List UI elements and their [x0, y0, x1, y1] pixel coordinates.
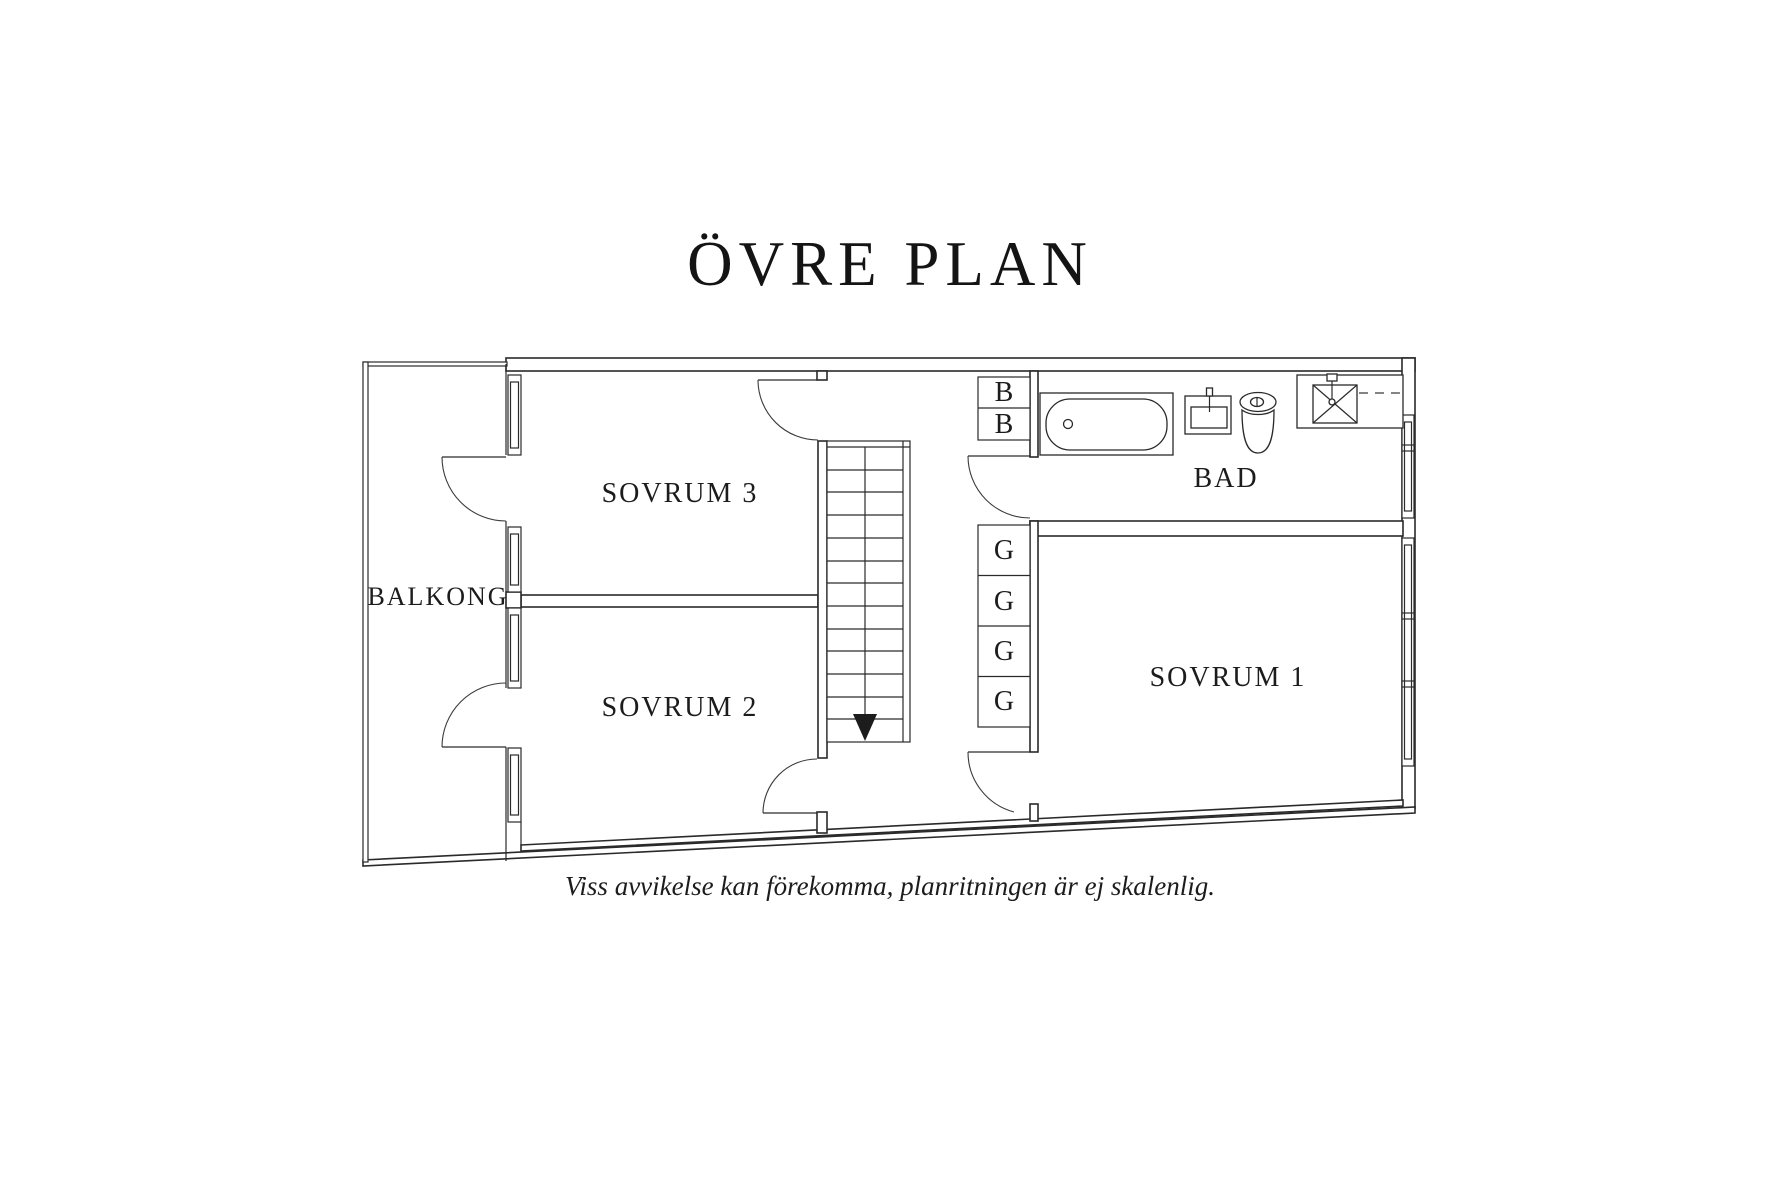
- wall-top: [506, 358, 1415, 371]
- closet-b-label: B: [995, 409, 1014, 440]
- toilet-icon: [1240, 393, 1276, 454]
- door-balcony-lower: [442, 683, 506, 747]
- wall-bathroom-bottom: [1030, 521, 1403, 536]
- closet-g-label: G: [994, 535, 1014, 566]
- door-balcony-upper: [442, 457, 506, 521]
- stairs: [827, 441, 910, 742]
- door-bathroom: [968, 456, 1030, 518]
- window: [508, 608, 521, 688]
- disclaimer-text: Viss avvikelse kan förekomma, planritnin…: [0, 871, 1780, 902]
- closet-g: G G G G: [978, 525, 1030, 727]
- door-sovrum3: [758, 380, 818, 440]
- closet-g-label: G: [994, 586, 1014, 617]
- window: [508, 748, 521, 822]
- door-sovrum2: [763, 759, 817, 813]
- window: [508, 375, 521, 455]
- wall-sovrum1-west: [1030, 521, 1038, 752]
- room-label-sovrum1: SOVRUM 1: [1150, 662, 1307, 693]
- room-label-sovrum3: SOVRUM 3: [602, 478, 759, 509]
- closet-g-label: G: [994, 686, 1014, 717]
- closet-b-label: B: [995, 377, 1014, 408]
- floor-plan-page: ÖVRE PLAN: [0, 0, 1780, 1187]
- balcony-wall-top: [363, 362, 507, 366]
- room-label-bad: BAD: [1193, 463, 1258, 494]
- stair-railing-wall: [818, 441, 827, 758]
- window: [1402, 538, 1414, 766]
- door-sovrum1: [968, 752, 1030, 812]
- shower-icon: [1297, 374, 1403, 428]
- sink-icon: [1185, 388, 1231, 434]
- bathroom-fixtures: [1040, 374, 1403, 455]
- wall-sovrum3-sovrum2: [521, 595, 818, 607]
- bathtub-icon: [1040, 393, 1173, 455]
- floor-plan-drawing: B B G G G G: [0, 0, 1780, 1187]
- wall-stub: [1030, 804, 1038, 821]
- wall-bathroom-west: [1030, 371, 1038, 457]
- closet-g-label: G: [994, 636, 1014, 667]
- wall-stub: [817, 812, 827, 833]
- room-label-sovrum2: SOVRUM 2: [602, 692, 759, 723]
- wall-stub: [817, 371, 827, 380]
- window: [508, 527, 521, 592]
- window: [1402, 415, 1414, 518]
- room-label-balkong: BALKONG: [367, 582, 508, 611]
- closet-b: B B: [978, 377, 1030, 440]
- balcony-wall-left: [363, 362, 368, 862]
- wall-bottom-inner: [521, 800, 1403, 851]
